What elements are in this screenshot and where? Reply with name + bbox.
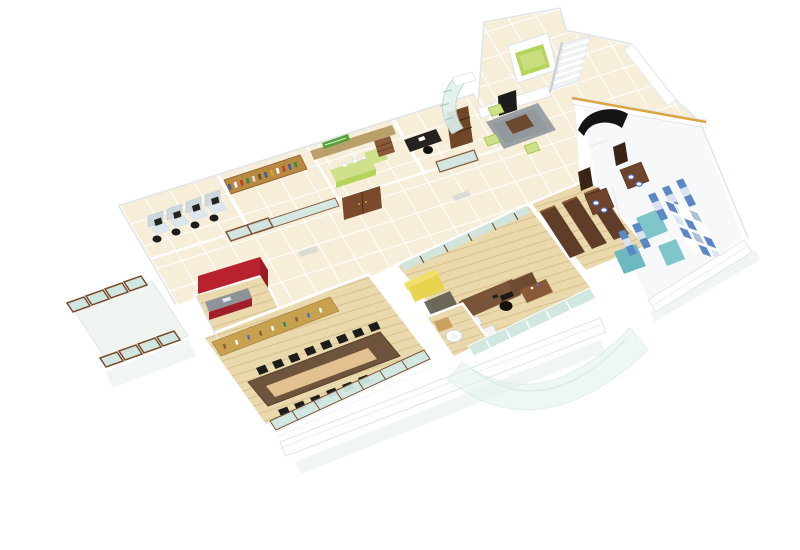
sink xyxy=(601,208,607,212)
door-handle xyxy=(358,203,360,205)
exec-chair xyxy=(500,301,513,311)
sink xyxy=(593,201,599,205)
render-canvas xyxy=(0,0,800,550)
credenza-item xyxy=(531,287,534,290)
sink xyxy=(636,182,642,186)
curved-wall-cap xyxy=(452,72,476,86)
door-handle xyxy=(365,201,367,203)
credenza-item xyxy=(537,284,540,287)
washroom-basin-bowl xyxy=(450,333,458,339)
cabin-chair xyxy=(423,146,433,154)
sink xyxy=(628,175,634,179)
floorplan-render xyxy=(0,0,800,550)
